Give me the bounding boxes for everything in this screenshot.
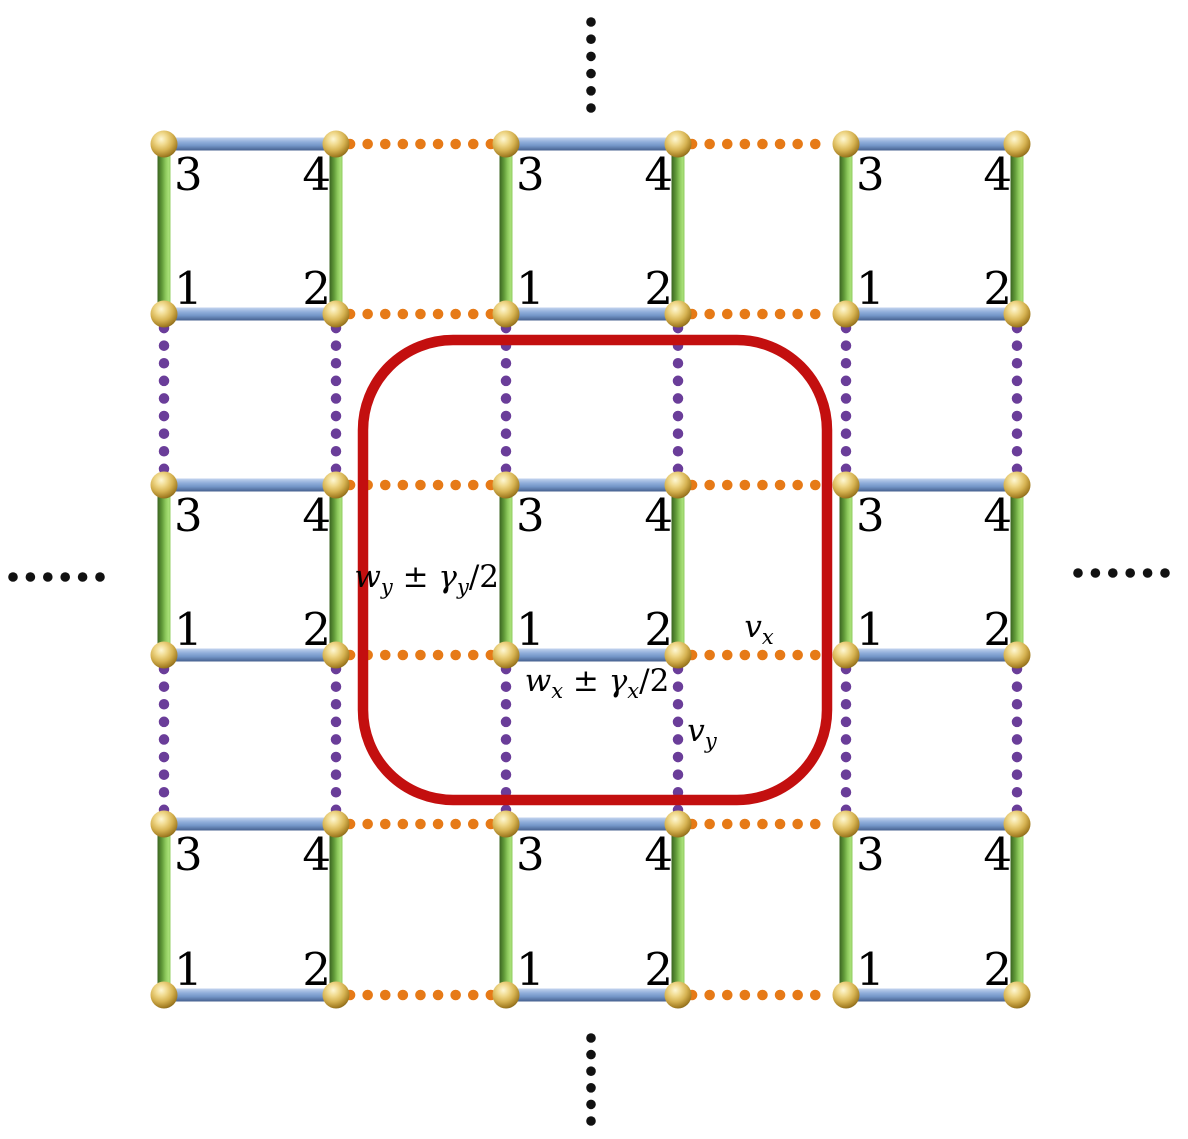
intracell-bond-y	[500, 485, 513, 655]
ellipsis-bottom-dot	[586, 1116, 596, 1126]
site-index-label: 2	[983, 603, 1012, 656]
ellipsis-bottom-dot	[586, 1066, 596, 1076]
site-index-label: 2	[302, 262, 331, 315]
intracell-bond-y	[1011, 824, 1024, 995]
ellipsis-left-dot	[60, 572, 70, 582]
intracell-bond-y	[840, 824, 853, 995]
intracell-bond-y	[500, 144, 513, 314]
intracell-bond-y	[330, 485, 343, 655]
site-index-label: 3	[856, 148, 885, 201]
site-index-label: 3	[174, 148, 203, 201]
ellipsis-top-dot	[586, 69, 596, 79]
intracell-bond-y	[1011, 144, 1024, 314]
site-index-label: 2	[983, 262, 1012, 315]
ellipsis-right-dot	[1091, 568, 1101, 578]
intracell-bonds	[158, 138, 1024, 1002]
site-index-label: 1	[174, 603, 203, 656]
intracell-bond-y	[840, 144, 853, 314]
ellipsis-top-dot	[586, 103, 596, 113]
lattice-diagram: 341234123412341234123412341234123412wy ±…	[0, 0, 1188, 1139]
site-index-label: 1	[516, 262, 545, 315]
ellipsis-left-dot	[43, 572, 53, 582]
intracell-bond-y	[672, 824, 685, 995]
intracell-bond-y	[158, 144, 171, 314]
site-index-label: 3	[174, 828, 203, 881]
ellipsis-top-dot	[586, 17, 596, 27]
ellipsis-right-dot	[1143, 568, 1153, 578]
site-index-label: 4	[644, 148, 673, 201]
lattice-sites	[151, 131, 1031, 1009]
ellipsis-top-dot	[586, 52, 596, 62]
site-index-label: 2	[983, 943, 1012, 996]
site-index-label: 2	[302, 603, 331, 656]
site-index-label: 4	[983, 828, 1012, 881]
figure-canvas: 341234123412341234123412341234123412wy ±…	[0, 0, 1188, 1139]
site-index-label: 4	[302, 148, 331, 201]
ellipsis-left-dot	[95, 572, 105, 582]
site-index-label: 3	[856, 489, 885, 542]
site-index-label: 4	[644, 828, 673, 881]
ellipsis-bottom-dot	[586, 1050, 596, 1060]
ellipsis-right-dot	[1160, 568, 1170, 578]
intracell-bond-y	[672, 485, 685, 655]
site-index-label: 1	[856, 262, 885, 315]
ellipsis-left-dot	[8, 572, 18, 582]
intercell-bonds	[164, 144, 1017, 995]
ellipsis-bottom-dot	[586, 1100, 596, 1110]
site-index-label: 3	[174, 489, 203, 542]
intracell-bond-y	[158, 824, 171, 995]
ellipsis-right-dot	[1073, 568, 1083, 578]
intracell-bond-y	[672, 144, 685, 314]
site-index-label: 1	[856, 943, 885, 996]
coupling-label-wx: wx ± γx/2	[525, 663, 670, 703]
site-index-label: 2	[302, 943, 331, 996]
site-index-label: 1	[516, 943, 545, 996]
site-index-label: 1	[174, 943, 203, 996]
site-index-label: 2	[644, 603, 673, 656]
coupling-label-vx: vx	[744, 609, 774, 649]
intracell-bond-y	[158, 485, 171, 655]
intracell-bond-y	[1011, 485, 1024, 655]
intracell-bond-y	[500, 824, 513, 995]
ellipsis-bottom-dot	[586, 1083, 596, 1093]
intracell-bond-y	[840, 485, 853, 655]
site-index-label: 4	[302, 828, 331, 881]
site-index-label: 4	[983, 489, 1012, 542]
ellipsis-left-dot	[78, 572, 88, 582]
site-index-label: 2	[644, 943, 673, 996]
intracell-bond-y	[330, 824, 343, 995]
ellipsis-left-dot	[26, 572, 36, 582]
site-index-label: 3	[856, 828, 885, 881]
coupling-label-vy: vy	[687, 713, 718, 753]
site-index-labels: 341234123412341234123412341234123412	[174, 148, 1012, 996]
site-index-label: 3	[516, 148, 545, 201]
site-index-label: 4	[983, 148, 1012, 201]
site-index-label: 3	[516, 489, 545, 542]
site-index-label: 3	[516, 828, 545, 881]
site-index-label: 1	[174, 262, 203, 315]
coupling-label-wy: wy ± γy/2	[354, 559, 499, 599]
ellipsis-top-dot	[586, 34, 596, 44]
ellipsis-right-dot	[1125, 568, 1135, 578]
site-index-label: 4	[302, 489, 331, 542]
site-index-label: 2	[644, 262, 673, 315]
ellipsis-top-dot	[586, 86, 596, 96]
intracell-bond-y	[330, 144, 343, 314]
site-index-label: 1	[516, 603, 545, 656]
site-index-label: 1	[856, 603, 885, 656]
ellipsis-bottom-dot	[586, 1033, 596, 1043]
site-index-label: 4	[644, 489, 673, 542]
ellipsis-right-dot	[1108, 568, 1118, 578]
